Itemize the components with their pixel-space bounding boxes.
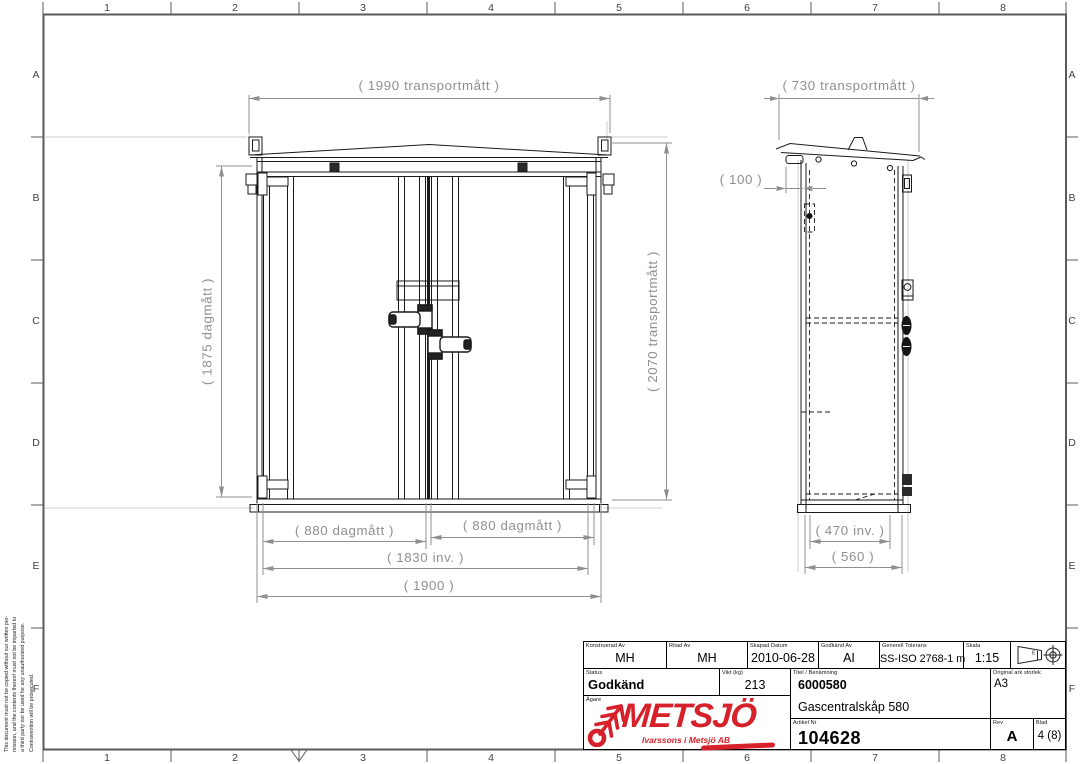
field-value: 2010-06-28 bbox=[748, 651, 818, 665]
field-original-ark-storlek: Original ark storlek A3 bbox=[991, 669, 1065, 719]
company-logo: METSJÖ Ivarssons i Metsjö AB bbox=[584, 696, 790, 749]
grid-col: 4 bbox=[488, 752, 494, 764]
grid-col: 2 bbox=[232, 752, 238, 764]
dim-side-depth-inner: ( 470 inv. ) bbox=[815, 523, 884, 538]
grid-row: C bbox=[1068, 315, 1076, 327]
dim-front-width-overall: ( 1900 ) bbox=[404, 578, 455, 593]
field-label: Blad bbox=[1036, 720, 1047, 726]
drawing-sheet: 1 2 3 4 5 6 7 8 1 2 3 4 5 6 7 8 A B C D … bbox=[0, 0, 1080, 764]
copyright-line: Contravention will be prosecuted. bbox=[28, 582, 36, 752]
dim-front-height-opening: ( 1875 dagmått ) bbox=[200, 278, 215, 385]
top-rails bbox=[257, 162, 601, 177]
field-blad: Blad 4 (8) bbox=[1034, 719, 1065, 749]
dim-side-pipe-offset: ( 100 ) bbox=[720, 172, 763, 187]
field-label: Original ark storlek bbox=[993, 670, 1041, 676]
first-angle-projection-icon: E bbox=[1011, 642, 1064, 668]
projection-letter: E bbox=[1032, 651, 1036, 657]
grid-col: 5 bbox=[616, 2, 622, 14]
grid-col: 7 bbox=[872, 752, 878, 764]
dim-side-depth-overall: ( 560 ) bbox=[832, 549, 875, 564]
field-status: Status Godkänd bbox=[584, 669, 720, 696]
grid-row: D bbox=[32, 437, 40, 449]
grid-col: 5 bbox=[616, 752, 622, 764]
field-label: Generell Tolerans bbox=[882, 643, 927, 649]
dim-front-width-transport: ( 1990 transportmått ) bbox=[358, 78, 499, 93]
dim-door-right: ( 880 dagmått ) bbox=[463, 518, 562, 533]
grid-col: 2 bbox=[232, 2, 238, 14]
field-ritad-av: Ritad Av MH bbox=[667, 642, 748, 669]
vent-hole bbox=[816, 157, 821, 162]
dim-side-depth-transport: ( 730 transportmått ) bbox=[782, 78, 915, 93]
grid-row: A bbox=[32, 69, 39, 81]
field-generell-tolerans: Generell Tolerans SS-ISO 2768-1 m bbox=[880, 642, 964, 669]
front-view bbox=[246, 137, 614, 512]
grid-col: 6 bbox=[744, 752, 750, 764]
dimension-texts: ( 1990 transportmått ) ( 1875 dagmått ) … bbox=[200, 78, 916, 593]
field-vikt: Vikt (kg) 213 bbox=[720, 669, 791, 696]
field-value: A3 bbox=[994, 678, 1008, 690]
grid-row: B bbox=[32, 192, 39, 204]
roof-handle bbox=[848, 138, 867, 151]
grid-row: E bbox=[1068, 560, 1075, 572]
grid-col: 8 bbox=[1000, 2, 1006, 14]
field-label: Status bbox=[586, 670, 602, 676]
field-value: 213 bbox=[720, 678, 790, 692]
grid-row: B bbox=[1068, 192, 1075, 204]
field-value: A bbox=[991, 728, 1033, 745]
hidden-lines bbox=[801, 170, 898, 500]
field-value: Godkänd bbox=[588, 677, 644, 692]
field-label: Konstruerad Av bbox=[586, 643, 625, 649]
grid-col: 6 bbox=[744, 2, 750, 14]
roof bbox=[250, 145, 608, 158]
roof-clip bbox=[518, 163, 527, 172]
field-value: 104628 bbox=[798, 728, 861, 749]
field-label: Ritad Av bbox=[669, 643, 690, 649]
grid-col: 3 bbox=[360, 752, 366, 764]
copyright-line: a third party nor be used for any unauth… bbox=[19, 582, 27, 752]
product-name: Gascentralskåp 580 bbox=[798, 700, 909, 714]
field-value: MH bbox=[584, 651, 666, 665]
copyright-line: This document must not be copied without… bbox=[3, 582, 11, 752]
vent-hole bbox=[851, 161, 856, 166]
dim-door-left: ( 880 dagmått ) bbox=[295, 523, 394, 538]
grid-col: 3 bbox=[360, 2, 366, 14]
field-label: Vikt (kg) bbox=[722, 670, 743, 676]
field-label: Rev bbox=[993, 720, 1003, 726]
logo-tagline: Ivarssons i Metsjö AB bbox=[642, 735, 730, 745]
grid-col: 1 bbox=[104, 2, 110, 14]
field-value: 4 (8) bbox=[1034, 730, 1065, 742]
base bbox=[801, 500, 903, 513]
field-label: Artikel Nr bbox=[793, 720, 817, 726]
roof-clip bbox=[330, 163, 339, 172]
grid-row: A bbox=[1068, 69, 1075, 81]
grid-col: 4 bbox=[488, 2, 494, 14]
field-artikel-nr: Artikel Nr 104628 bbox=[791, 719, 991, 749]
field-value: 1:15 bbox=[964, 651, 1010, 665]
field-label: Skala bbox=[966, 643, 980, 649]
pipe-stub bbox=[786, 156, 803, 164]
grid-row: D bbox=[1068, 437, 1076, 449]
field-godkand-av: Godkänd Av AI bbox=[819, 642, 880, 669]
field-value: MH bbox=[667, 651, 747, 665]
copyright-line: mission, and the contents thereof must n… bbox=[11, 582, 19, 752]
logo-wordmark: METSJÖ bbox=[621, 697, 758, 736]
door-left-stiles bbox=[270, 177, 420, 500]
grid-col: 1 bbox=[104, 752, 110, 764]
dim-front-height-transport: ( 2070 transportmått ) bbox=[645, 251, 660, 392]
grid-row: F bbox=[1069, 683, 1075, 695]
field-label: Titel / Benämning bbox=[793, 670, 837, 676]
walls bbox=[801, 160, 903, 505]
field-value: AI bbox=[819, 651, 879, 665]
grid-row: E bbox=[32, 560, 39, 572]
field-rev: Rev A bbox=[991, 719, 1034, 749]
grid-row: C bbox=[32, 315, 40, 327]
side-hinge bbox=[903, 175, 912, 192]
base-sill bbox=[257, 499, 601, 512]
lock-knob bbox=[807, 213, 813, 219]
dim-front-width-inner: ( 1830 inv. ) bbox=[387, 550, 464, 565]
title-block: Konstruerad Av MH Ritad Av MH Skapad Dat… bbox=[583, 641, 1066, 750]
field-titel: Titel / Benämning 6000580 Gascentralskåp… bbox=[791, 669, 991, 719]
grid-col: 8 bbox=[1000, 752, 1006, 764]
field-value: SS-ISO 2768-1 m bbox=[880, 653, 963, 665]
field-label: Godkänd Av bbox=[821, 643, 852, 649]
field-konstruerad-av: Konstruerad Av MH bbox=[584, 642, 667, 669]
grid-col: 7 bbox=[872, 2, 878, 14]
projection-symbol-cell: E bbox=[1011, 642, 1065, 669]
field-agare: Ägare METSJÖ Ivarssons i Metsjö AB bbox=[584, 696, 791, 749]
article-code: 6000580 bbox=[798, 678, 847, 692]
field-skapad-datum: Skapad Datum 2010-06-28 bbox=[748, 642, 819, 669]
field-skala: Skala 1:15 bbox=[964, 642, 1011, 669]
vent-hole bbox=[887, 165, 892, 170]
field-label: Skapad Datum bbox=[750, 643, 788, 649]
copyright-note: This document must not be copied without… bbox=[3, 582, 37, 752]
